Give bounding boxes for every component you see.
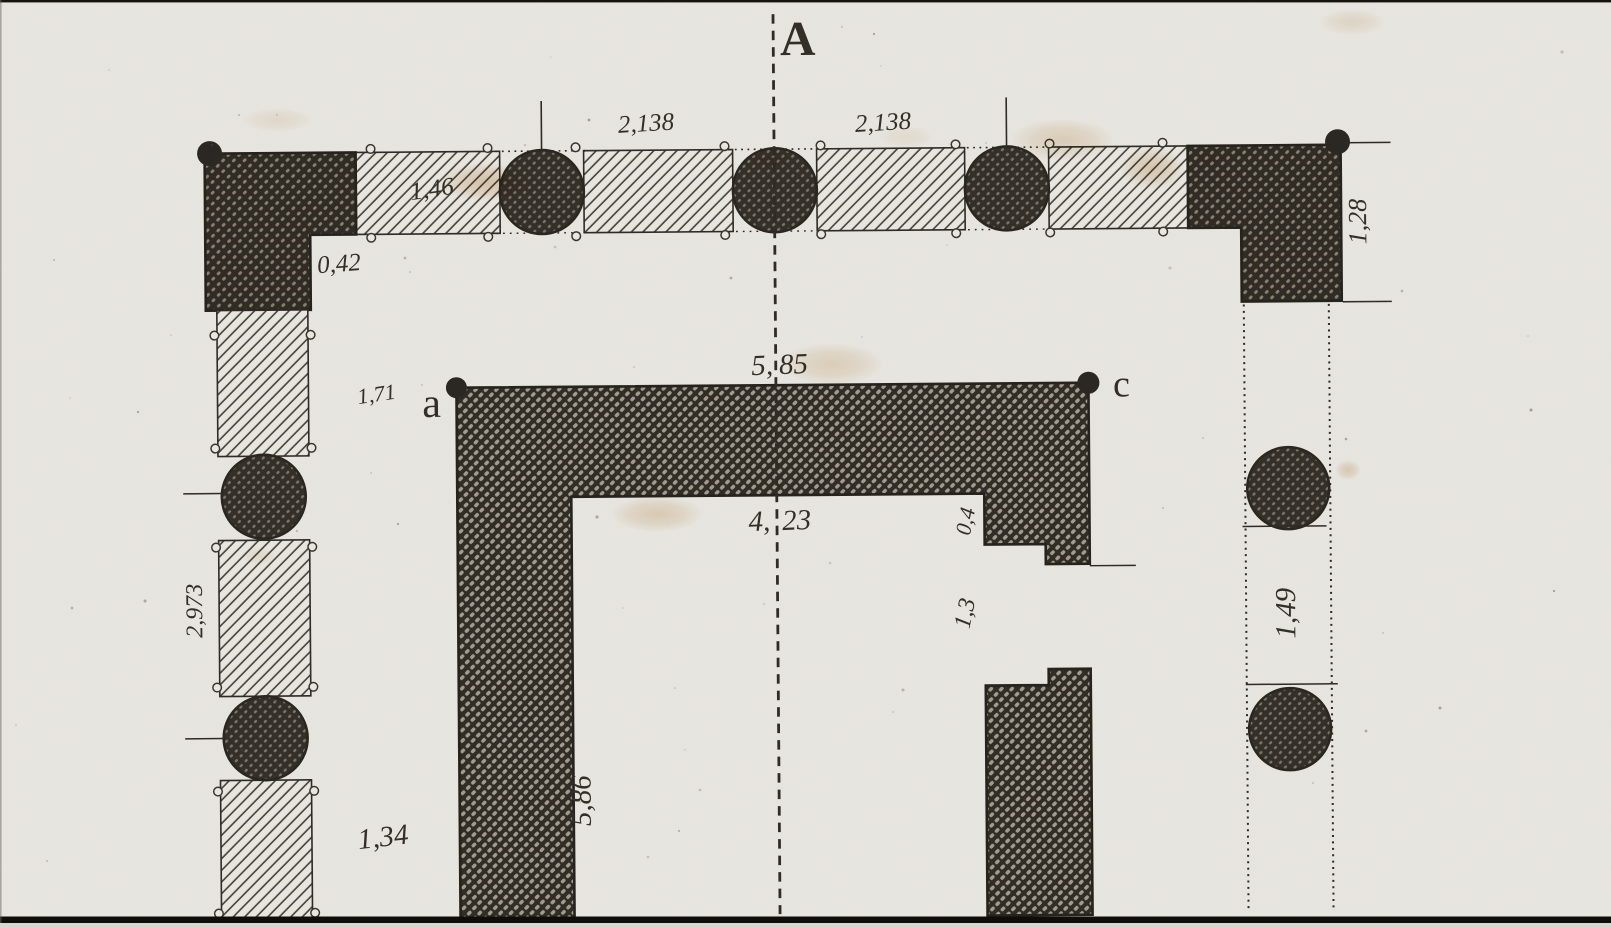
svg-text:2,973: 2,973 [182, 584, 208, 638]
svg-text:23: 23 [781, 504, 811, 537]
svg-text:1,49: 1,49 [1270, 587, 1302, 638]
svg-text:0,42: 0,42 [316, 249, 362, 279]
svg-text:c: c [1113, 363, 1130, 405]
svg-text:a: a [422, 381, 441, 427]
svg-text:4,: 4, [748, 505, 771, 538]
svg-text:A: A [780, 11, 816, 66]
svg-text:5,86: 5,86 [565, 775, 597, 826]
svg-text:1,34: 1,34 [356, 819, 410, 856]
svg-text:5,: 5, [751, 349, 774, 382]
svg-text:2,138: 2,138 [617, 109, 675, 139]
svg-text:1,28: 1,28 [1343, 199, 1372, 245]
